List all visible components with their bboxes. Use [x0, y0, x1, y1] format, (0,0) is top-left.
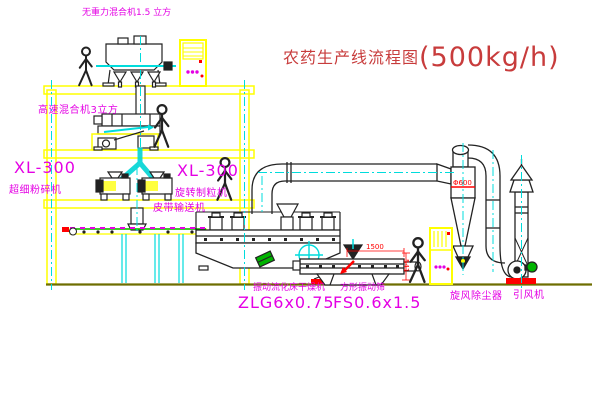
person-top-floor — [79, 48, 92, 86]
gravity-mixer — [96, 36, 176, 116]
belt-conveyor — [62, 227, 210, 283]
label-belt-conveyor: 皮带输送机 — [153, 204, 206, 214]
person-ground — [410, 238, 425, 282]
label-screen-model: FS0.6x1.5 — [333, 295, 421, 311]
cabinet-indicator-icon — [199, 60, 202, 63]
label-screen-name: 方形振动筛 — [340, 284, 385, 293]
label-dryer-name: 振动流化床干燥机 — [253, 284, 325, 293]
person-second-floor — [154, 105, 168, 147]
label-gravity-mixer: 无重力混合机1.5 立方 — [82, 9, 171, 18]
conveyor-drive-icon — [62, 227, 69, 232]
dim-cyclone-dia: Φ600 — [453, 180, 472, 187]
label-dryer-model: ZLG6x0.75 — [238, 295, 335, 311]
label-granulator-name: 旋转制粒机 — [175, 189, 228, 199]
label-mill-model: XL-300 — [14, 160, 76, 176]
fan-motor-icon — [527, 262, 537, 272]
dim-screen-length: 1500 — [366, 244, 384, 251]
title-text: 农药生产线流程图 — [283, 44, 419, 73]
granulator-right — [138, 172, 172, 200]
cabinet-buttons-icon — [186, 70, 198, 73]
label-mill-name: 超细粉碎机 — [9, 186, 62, 196]
title-capacity: (500kg/h) — [419, 42, 560, 73]
cabinet-buttons-icon — [434, 265, 445, 268]
label-cyclone: 旋风除尘器 — [450, 292, 503, 302]
label-granulator-model: XL-300 — [177, 163, 239, 179]
fan-duct — [468, 145, 512, 277]
flow-diagram-page: 农药生产线流程图 (500kg/h) 无重力混合机1.5 立方 高速混合机3立方… — [0, 0, 600, 403]
conveyor-legs — [122, 234, 183, 283]
label-high-speed-mixer: 高速混合机3立方 — [38, 106, 118, 116]
granulator-left — [96, 172, 130, 200]
page-title: 农药生产线流程图 (500kg/h) — [283, 42, 560, 73]
control-cabinet-2 — [430, 228, 452, 284]
high-speed-mixer — [92, 114, 160, 150]
dim-screen-side: 541 — [402, 259, 409, 272]
control-cabinet-1 — [180, 40, 206, 86]
label-fan: 引风机 — [513, 291, 545, 301]
